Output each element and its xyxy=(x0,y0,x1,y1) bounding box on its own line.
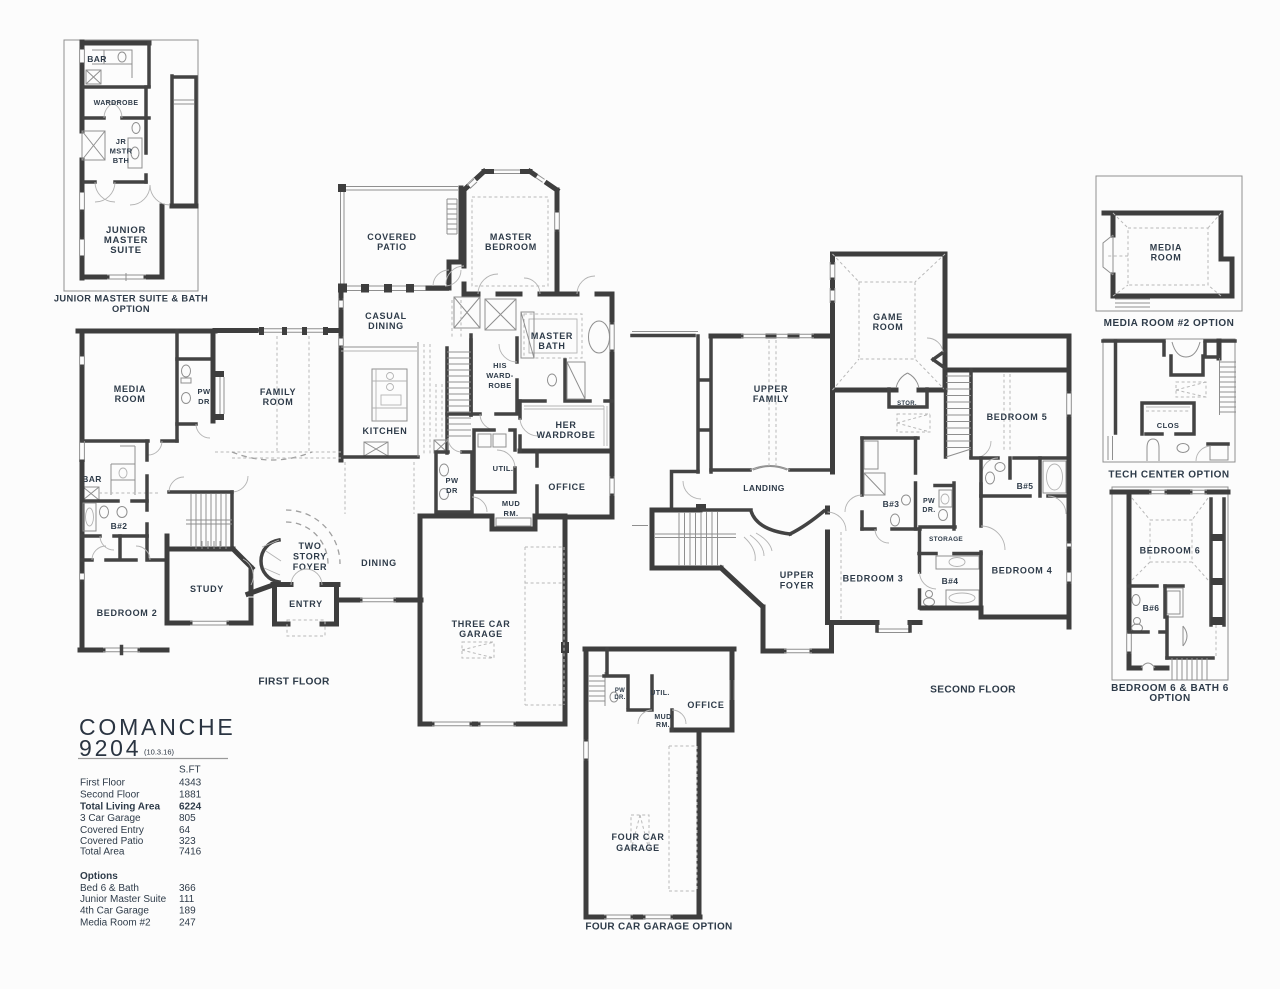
svg-text:MUD: MUD xyxy=(502,499,520,508)
svg-text:ROOM: ROOM xyxy=(873,322,904,332)
svg-text:6224: 6224 xyxy=(179,801,202,812)
svg-text:SECOND FLOOR: SECOND FLOOR xyxy=(930,685,1016,696)
svg-text:TECH CENTER OPTION: TECH CENTER OPTION xyxy=(1108,470,1229,481)
svg-text:(10.3.16): (10.3.16) xyxy=(144,748,175,757)
svg-text:GAME: GAME xyxy=(873,312,903,322)
svg-text:FIRST FLOOR: FIRST FLOOR xyxy=(258,677,330,688)
svg-text:COVERED: COVERED xyxy=(367,232,416,242)
svg-text:MASTER: MASTER xyxy=(490,232,532,242)
svg-text:PW: PW xyxy=(923,498,935,505)
svg-text:WARD-: WARD- xyxy=(486,371,514,380)
svg-text:FOYER: FOYER xyxy=(780,581,815,591)
svg-text:4th Car Garage: 4th Car Garage xyxy=(80,906,149,917)
svg-text:B#3: B#3 xyxy=(883,499,900,509)
svg-text:ENTRY: ENTRY xyxy=(289,599,323,609)
svg-text:MASTER: MASTER xyxy=(531,331,573,341)
svg-text:DINING: DINING xyxy=(368,321,404,331)
svg-text:FOYER: FOYER xyxy=(293,562,328,572)
svg-text:3 Car Garage: 3 Car Garage xyxy=(80,813,141,824)
svg-text:BTH: BTH xyxy=(113,156,130,165)
svg-text:TWO: TWO xyxy=(298,541,321,551)
svg-text:FAMILY: FAMILY xyxy=(753,394,789,404)
svg-text:Bed 6 & Bath: Bed 6 & Bath xyxy=(80,883,139,894)
svg-text:323: 323 xyxy=(179,836,196,847)
svg-text:B#2: B#2 xyxy=(111,521,128,531)
svg-text:MEDIA ROOM #2 OPTION: MEDIA ROOM #2 OPTION xyxy=(1104,318,1235,329)
svg-text:PW: PW xyxy=(198,387,211,396)
svg-text:CLOS: CLOS xyxy=(1157,421,1179,430)
svg-text:ROOM: ROOM xyxy=(1151,253,1182,263)
svg-text:DR: DR xyxy=(446,486,458,495)
svg-text:DR: DR xyxy=(198,397,210,406)
svg-text:111: 111 xyxy=(179,894,195,905)
svg-text:HIS: HIS xyxy=(493,361,507,370)
svg-text:UTIL.: UTIL. xyxy=(650,690,670,697)
svg-text:B#6: B#6 xyxy=(1143,603,1160,613)
svg-text:64: 64 xyxy=(179,825,191,836)
svg-text:UPPER: UPPER xyxy=(780,570,815,580)
svg-text:ROOM: ROOM xyxy=(263,397,294,407)
svg-text:189: 189 xyxy=(179,906,196,917)
svg-text:STOR.: STOR. xyxy=(897,401,917,407)
svg-text:UPPER: UPPER xyxy=(754,384,789,394)
svg-text:DR.: DR. xyxy=(922,507,935,514)
svg-text:FAMILY: FAMILY xyxy=(260,387,296,397)
svg-text:STORY: STORY xyxy=(293,552,327,562)
svg-text:DINING: DINING xyxy=(361,558,397,568)
svg-text:GARAGE: GARAGE xyxy=(459,629,503,639)
svg-text:THREE CAR: THREE CAR xyxy=(452,619,511,629)
svg-text:OPTION: OPTION xyxy=(1149,693,1190,704)
svg-text:MEDIA: MEDIA xyxy=(114,384,147,394)
svg-text:First Floor: First Floor xyxy=(80,778,126,789)
svg-text:Covered Patio: Covered Patio xyxy=(80,836,144,847)
svg-text:ROBE: ROBE xyxy=(488,381,511,390)
svg-text:UTIL.: UTIL. xyxy=(493,464,514,473)
svg-text:RM.: RM. xyxy=(504,509,519,518)
svg-text:OPTION: OPTION xyxy=(112,304,150,314)
svg-text:Options: Options xyxy=(80,871,118,882)
svg-text:BEDROOM 6: BEDROOM 6 xyxy=(1140,546,1201,556)
svg-text:247: 247 xyxy=(179,917,196,928)
svg-text:805: 805 xyxy=(179,813,196,824)
svg-text:BATH: BATH xyxy=(538,341,565,351)
svg-text:STUDY: STUDY xyxy=(190,584,224,594)
svg-text:JUNIOR MASTER SUITE & BATH: JUNIOR MASTER SUITE & BATH xyxy=(54,294,208,304)
svg-text:9204: 9204 xyxy=(79,735,141,761)
svg-text:7416: 7416 xyxy=(179,847,202,858)
svg-text:PW: PW xyxy=(615,688,625,694)
svg-text:FOUR CAR GARAGE OPTION: FOUR CAR GARAGE OPTION xyxy=(585,922,732,933)
svg-text:OFFICE: OFFICE xyxy=(687,700,724,710)
svg-text:PW: PW xyxy=(446,476,459,485)
svg-text:MSTR: MSTR xyxy=(110,147,133,156)
svg-text:BAR: BAR xyxy=(87,54,107,64)
svg-text:WARDROBE: WARDROBE xyxy=(94,100,139,107)
svg-text:Junior Master Suite: Junior Master Suite xyxy=(80,894,167,905)
svg-text:BAR: BAR xyxy=(82,474,102,484)
svg-text:LANDING: LANDING xyxy=(743,483,785,493)
svg-text:HER: HER xyxy=(555,420,576,430)
svg-text:RM.: RM. xyxy=(656,722,670,729)
svg-text:BEDROOM 2: BEDROOM 2 xyxy=(97,608,158,618)
svg-text:1881: 1881 xyxy=(179,789,202,800)
svg-text:Total Area: Total Area xyxy=(80,847,125,858)
svg-text:Second Floor: Second Floor xyxy=(80,789,140,800)
svg-text:Covered Entry: Covered Entry xyxy=(80,825,144,836)
svg-text:JR: JR xyxy=(116,137,127,146)
svg-text:Total Living Area: Total Living Area xyxy=(80,801,160,812)
svg-text:MEDIA: MEDIA xyxy=(1150,243,1183,253)
svg-text:CASUAL: CASUAL xyxy=(365,311,407,321)
svg-text:DR.: DR. xyxy=(614,695,625,701)
svg-text:BEDROOM 3: BEDROOM 3 xyxy=(843,574,904,584)
svg-text:WARDROBE: WARDROBE xyxy=(536,430,595,440)
svg-text:B#4: B#4 xyxy=(942,576,959,586)
svg-text:BEDROOM 5: BEDROOM 5 xyxy=(987,412,1048,422)
svg-text:FOUR CAR: FOUR CAR xyxy=(611,832,664,842)
svg-text:STORAGE: STORAGE xyxy=(929,536,963,543)
svg-text:Media Room #2: Media Room #2 xyxy=(80,917,151,928)
svg-text:366: 366 xyxy=(179,883,196,894)
svg-text:SUITE: SUITE xyxy=(110,245,141,256)
svg-text:OFFICE: OFFICE xyxy=(548,482,585,492)
svg-text:PATIO: PATIO xyxy=(377,242,407,252)
svg-text:B#5: B#5 xyxy=(1017,481,1034,491)
svg-text:BEDROOM: BEDROOM xyxy=(485,242,537,252)
svg-text:KITCHEN: KITCHEN xyxy=(363,426,408,436)
svg-text:BEDROOM 4: BEDROOM 4 xyxy=(992,566,1053,576)
svg-text:ROOM: ROOM xyxy=(115,394,146,404)
svg-text:S.FT: S.FT xyxy=(179,765,201,776)
svg-text:4343: 4343 xyxy=(179,778,202,789)
svg-text:MUD: MUD xyxy=(654,714,671,721)
svg-text:GARAGE: GARAGE xyxy=(616,843,660,853)
